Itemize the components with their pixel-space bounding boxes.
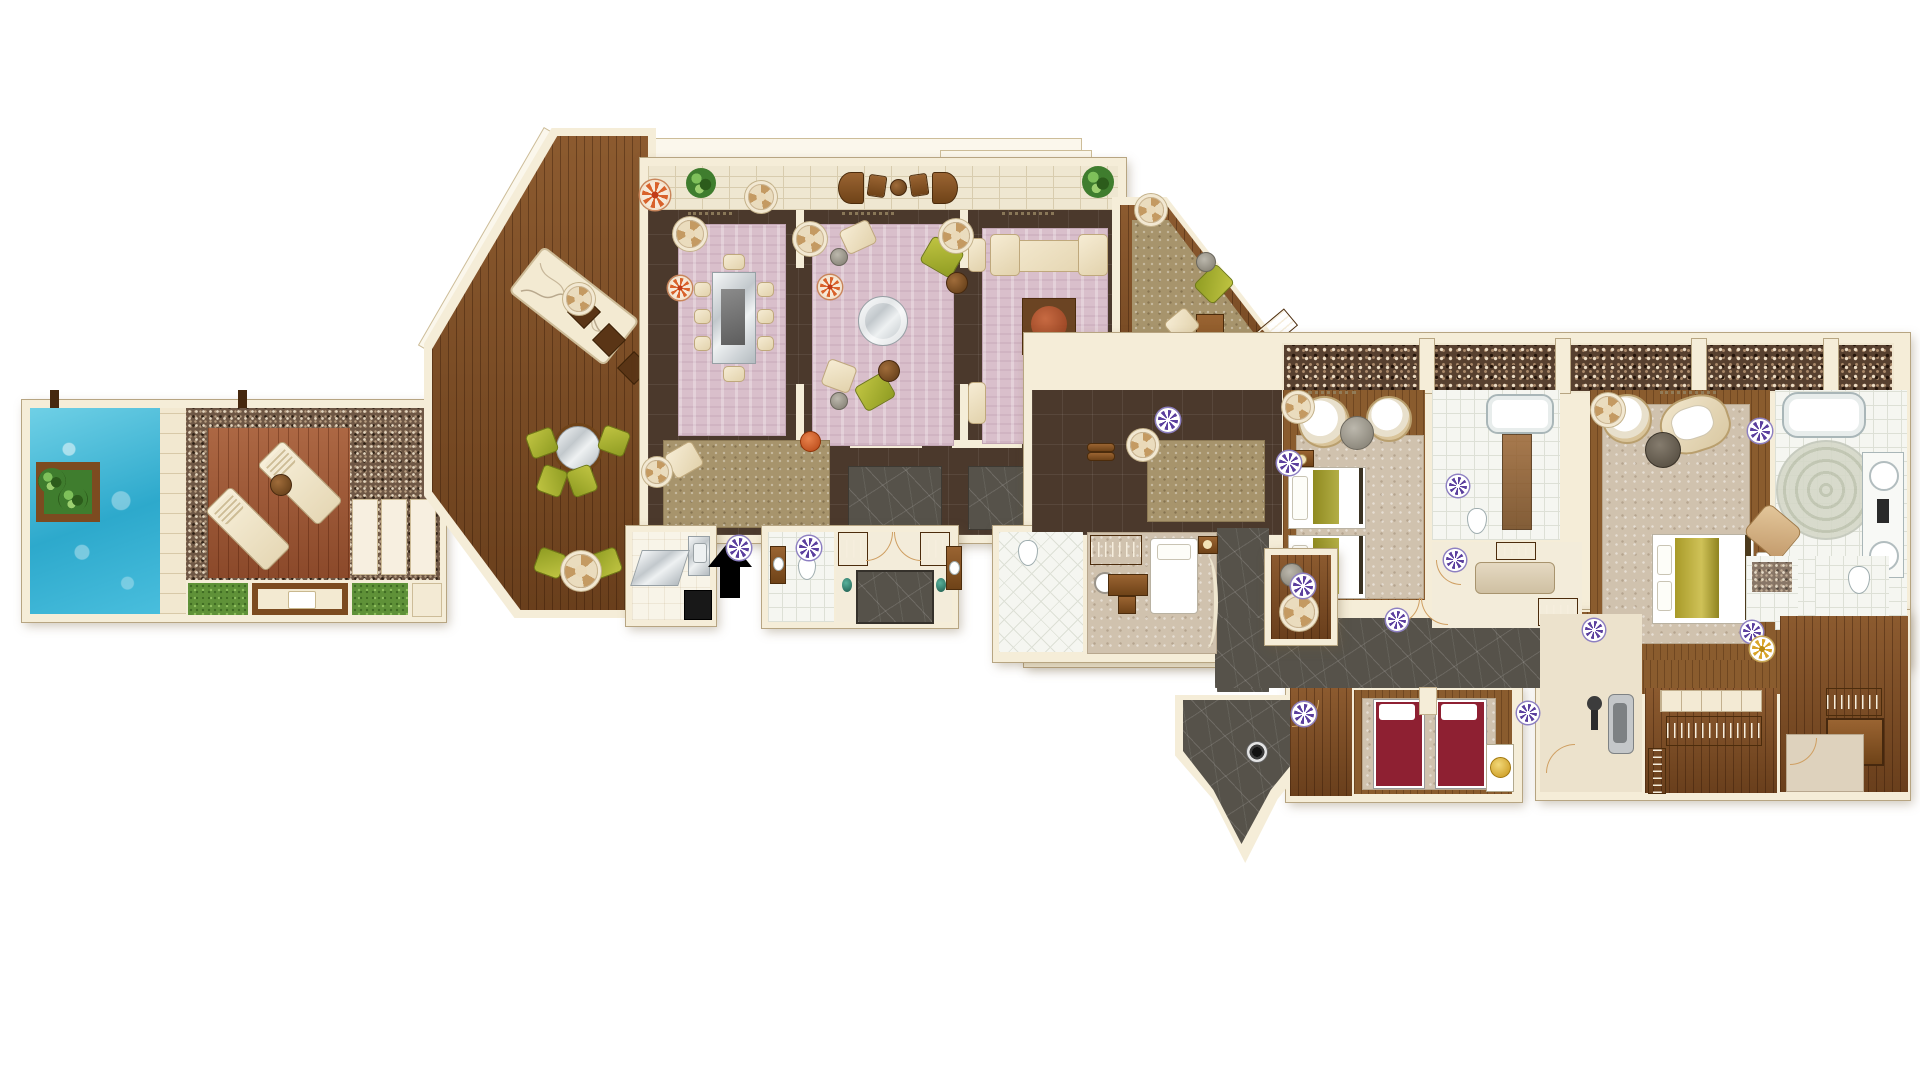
round-mirror-table (556, 426, 600, 470)
ceiling-fan-icon (1138, 197, 1164, 223)
stone-slab (412, 583, 442, 617)
ceiling-fan-icon (1594, 396, 1622, 424)
rosette-icon (1292, 702, 1316, 726)
round-table (1340, 416, 1374, 450)
terrace-table (890, 179, 907, 196)
rosette-icon (640, 180, 670, 210)
terrace-shrub-icon (686, 168, 716, 198)
side-table (1196, 252, 1216, 272)
curved-lounge-seat (932, 172, 958, 204)
dining-chair (694, 309, 711, 324)
rosette-icon (1277, 451, 1301, 475)
hanging-rail (1496, 542, 1536, 560)
dining-table (712, 272, 756, 364)
bathtub (1486, 394, 1554, 434)
rosette-icon (1444, 549, 1466, 571)
rosette-icon (797, 536, 821, 560)
gold-basin-unit (1486, 744, 1514, 792)
drinks-table (270, 474, 292, 496)
dining-chair (694, 336, 711, 351)
terrace-cushion (909, 173, 930, 197)
mosaic-terrace (1282, 343, 1894, 393)
floor-spot-icon (1246, 741, 1268, 763)
orange-pouf (800, 431, 821, 452)
duvet-gold (1675, 538, 1719, 618)
side-seat (968, 238, 986, 272)
terrace-shrub-icon (1082, 166, 1114, 198)
curved-lounge-seat (838, 172, 864, 204)
pillow (1157, 544, 1191, 560)
rosette-icon (1517, 702, 1539, 724)
wall (960, 384, 968, 444)
ceiling-fan-icon (1285, 394, 1311, 420)
king-bed (1652, 534, 1754, 624)
bed-runner (1313, 470, 1339, 524)
rosette-icon (727, 536, 751, 560)
pillow (1292, 476, 1308, 520)
rosette-icon (1447, 475, 1469, 497)
window-mark (688, 212, 732, 215)
bathtub (1782, 392, 1866, 438)
vanity-basin (770, 546, 786, 584)
ceiling-fan-icon (796, 225, 824, 253)
dining-chair (723, 254, 745, 270)
pillow (1379, 704, 1415, 720)
dark-round-table (1645, 432, 1681, 468)
spa-divider (1420, 688, 1436, 714)
staff-closet (1090, 535, 1142, 565)
pillar (1692, 339, 1706, 393)
ceiling-fan-icon (566, 286, 592, 312)
lawn-patch (188, 583, 248, 615)
ceiling-fan-icon (942, 222, 970, 250)
slab-patio (348, 495, 440, 577)
closet-shelf-band (1660, 690, 1762, 712)
ceiling-fan-icon (676, 220, 704, 248)
rosette-icon (1748, 419, 1772, 443)
round-glass-table (858, 296, 908, 346)
pillow (1441, 704, 1477, 720)
dining-chair (757, 282, 774, 297)
slate-rug (848, 466, 942, 530)
fan-side-table (564, 554, 598, 588)
rosette-icon (1386, 609, 1408, 631)
pillow (1657, 581, 1672, 611)
rosette-icon (1156, 408, 1180, 432)
olive-armchair (596, 424, 631, 458)
side-seat (968, 382, 986, 424)
lawn-patch (352, 583, 408, 615)
planter-shrub-icon (58, 486, 88, 512)
runner-rug (1502, 434, 1532, 530)
shower-pebble-floor (1752, 562, 1792, 592)
urn (842, 578, 852, 592)
pillar (1824, 339, 1838, 393)
sofa-chaise (990, 234, 1020, 276)
sun-deck (208, 428, 350, 578)
ceiling-fan-icon (1130, 432, 1156, 458)
window-mark (1660, 391, 1716, 394)
coat-closet (838, 532, 868, 566)
sink (1869, 461, 1899, 491)
ceiling-fan-icon (748, 184, 774, 210)
pool-edge (160, 408, 186, 614)
gold-basin (1490, 757, 1511, 778)
terrace-cushion (867, 174, 888, 198)
ceiling-fan-icon (1283, 596, 1315, 628)
olive-armchair (524, 426, 559, 460)
side-table (946, 272, 968, 294)
staff-bathroom-floor (999, 532, 1083, 652)
island-bench (1475, 562, 1555, 594)
rosette-icon (668, 276, 692, 300)
staff-table (1108, 574, 1148, 596)
exercise-equipment (1586, 696, 1604, 732)
window-mark (1308, 391, 1356, 394)
hanging-rail (1666, 716, 1762, 746)
twin-bed (1288, 467, 1366, 529)
hall-rug (1147, 440, 1265, 522)
hanging-rail (1648, 748, 1666, 794)
cabana-daybed (252, 583, 348, 615)
urn (936, 578, 946, 592)
sun-lounger (205, 486, 291, 572)
olive-armchair (535, 463, 569, 498)
rosette-icon (1291, 574, 1315, 598)
floor-plan (0, 0, 1920, 1080)
sofa-chaise (1078, 234, 1108, 276)
daybed-mattress (288, 591, 316, 609)
hanging-rail (1826, 688, 1882, 716)
rosette-icon (1750, 637, 1774, 661)
dining-chair (723, 366, 745, 382)
bar-counter (946, 546, 962, 590)
side-table (878, 360, 900, 382)
window-mark (842, 212, 894, 215)
curved-partition (1196, 556, 1218, 648)
ceiling-fan-icon (645, 460, 669, 484)
dining-chair (757, 309, 774, 324)
pillar (1420, 339, 1434, 393)
rolled-towel (1087, 452, 1115, 461)
side-table (830, 248, 848, 266)
staff-bed (1150, 538, 1198, 614)
side-table (830, 392, 848, 410)
treadmill (1608, 694, 1634, 754)
rosette-icon (1583, 619, 1605, 641)
pillar (1556, 339, 1570, 393)
rosette-icon (818, 275, 842, 299)
massage-bed (1436, 700, 1486, 788)
massage-bed (1374, 700, 1424, 788)
dining-chair (694, 282, 711, 297)
dining-chair (757, 336, 774, 351)
staff-table-pedestal (1118, 596, 1136, 614)
rolled-towel (1087, 443, 1115, 452)
entry-mat (856, 570, 934, 624)
pillow (1657, 545, 1672, 575)
staff-nightstand (1198, 536, 1218, 554)
window-mark (1002, 212, 1054, 215)
olive-armchair (532, 546, 567, 580)
